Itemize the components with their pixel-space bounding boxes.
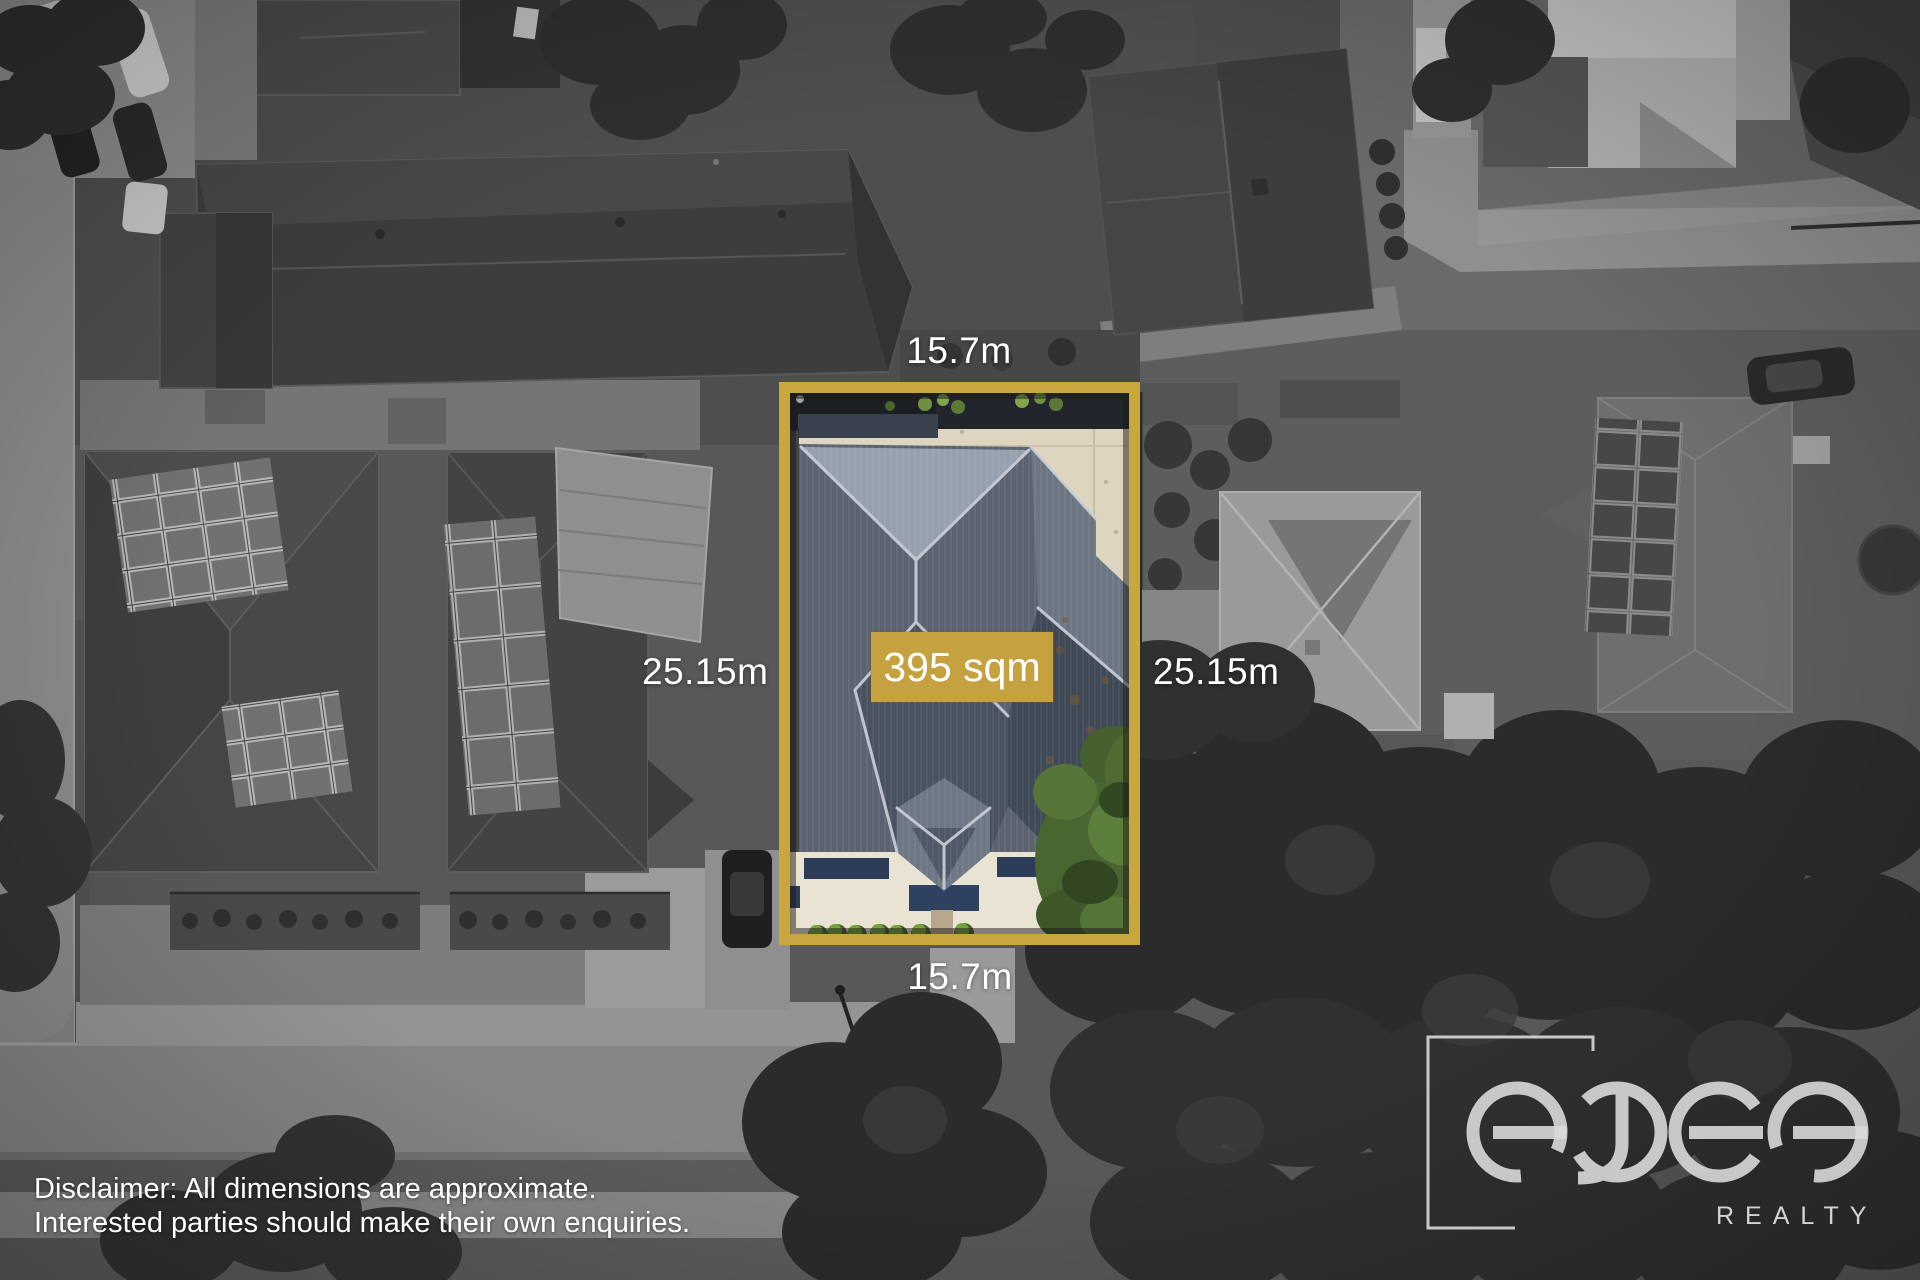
disclaimer-line-1: Disclaimer: All dimensions are approxima… (34, 1172, 690, 1206)
dimension-label-top: 15.7m (906, 330, 1011, 372)
disclaimer-line-2: Interested parties should make their own… (34, 1206, 690, 1240)
dimension-label-right: 25.15m (1153, 651, 1279, 693)
lot-area-badge: 395 sqm (871, 632, 1053, 702)
aerial-photo-page: 15.7m 25.15m 25.15m 15.7m 395 sqm Discla… (0, 0, 1920, 1280)
brand-tagline: REALTY (1716, 1202, 1877, 1231)
disclaimer-text: Disclaimer: All dimensions are approxima… (34, 1172, 690, 1240)
dimension-label-left: 25.15m (642, 651, 768, 693)
dimension-label-bottom: 15.7m (907, 956, 1012, 998)
edge-realty-logo: REALTY (1420, 1028, 1890, 1248)
